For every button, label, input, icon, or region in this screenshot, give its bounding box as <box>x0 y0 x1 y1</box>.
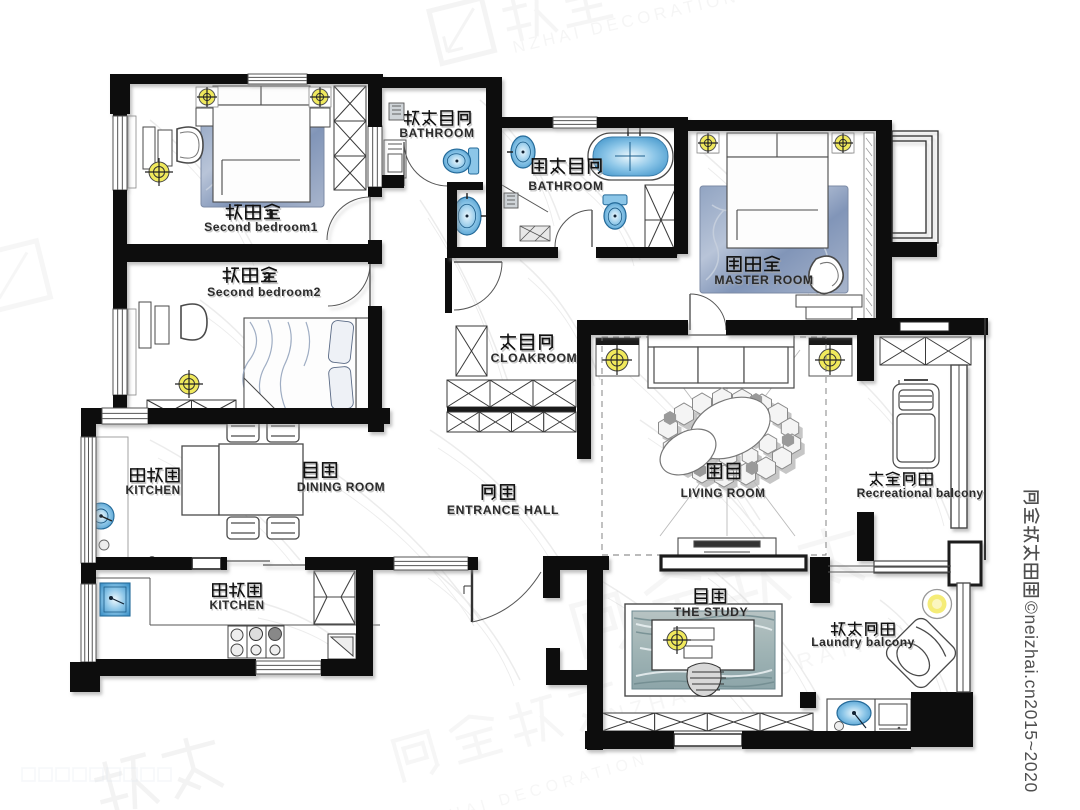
svg-text:CLOAKROOM: CLOAKROOM <box>491 351 578 365</box>
svg-text:Laundry balcony: Laundry balcony <box>811 635 915 649</box>
svg-text:KITCHEN: KITCHEN <box>125 484 180 497</box>
svg-text:Second bedroom2: Second bedroom2 <box>207 285 321 299</box>
svg-text:KITCHEN: KITCHEN <box>209 599 264 612</box>
svg-text:LIVING ROOM: LIVING ROOM <box>681 486 766 500</box>
svg-text:ENTRANCE HALL: ENTRANCE HALL <box>447 503 559 517</box>
svg-text:BATHROOM: BATHROOM <box>399 126 474 140</box>
svg-text:MASTER ROOM: MASTER ROOM <box>714 273 813 287</box>
svg-text:Second bedroom1: Second bedroom1 <box>204 220 318 234</box>
svg-text:BATHROOM: BATHROOM <box>528 179 603 193</box>
svg-text:©neizhai.cn2015~2020: ©neizhai.cn2015~2020 <box>1021 601 1041 793</box>
svg-text:DINING ROOM: DINING ROOM <box>297 480 385 494</box>
svg-text:2: 2 <box>263 269 271 286</box>
svg-text:Recreational balcony: Recreational balcony <box>857 486 984 500</box>
svg-text:THE STUDY: THE STUDY <box>674 605 748 619</box>
